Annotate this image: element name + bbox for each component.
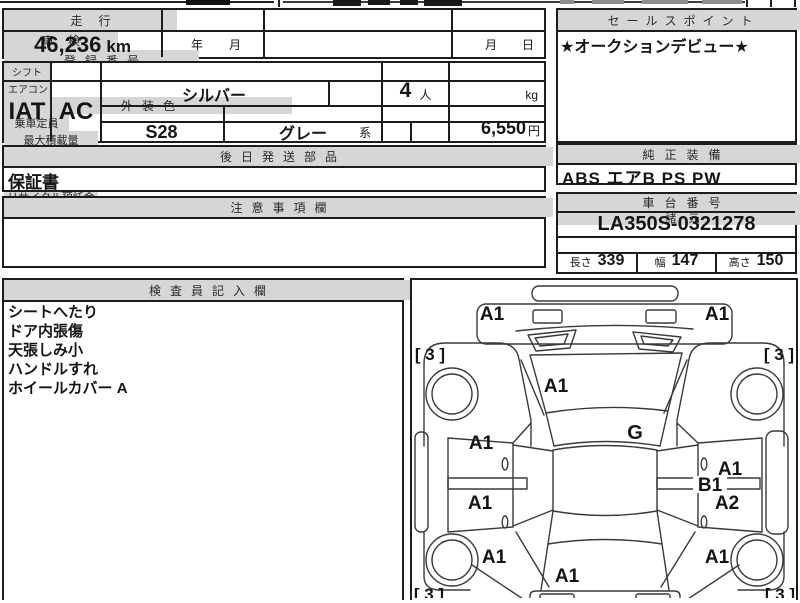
remnant-text	[368, 0, 390, 5]
remnant-text	[400, 0, 418, 5]
damage-label-hood: A1	[544, 376, 569, 397]
sales-point-header: セールスポイント	[558, 10, 800, 30]
damage-diagram: A1 A1 A1 G A1 A1 A1 B1 A2 A1 A1 A1 [ 3 ]…	[410, 278, 798, 600]
damage-label-front-door-left: A1	[469, 433, 494, 454]
inspection-month: 月	[229, 36, 241, 53]
chassis-header: 車台番号	[558, 194, 800, 211]
sales-point-section: セールスポイント ★オークションデビュー★	[556, 8, 797, 143]
capacity-unit: 人	[419, 86, 431, 103]
mileage-table: 走行 車検 登録番号 譲渡書類期限 46,236 km 年 月 月 日	[2, 8, 546, 59]
inspector-line: ホイールカバー A	[8, 379, 128, 398]
notes-section: 注意事項欄	[2, 196, 546, 268]
sales-point-value: ★オークションデビュー★	[560, 33, 749, 57]
length-value: 339	[598, 252, 625, 270]
transfer-day: 日	[522, 36, 534, 53]
mileage-unit: km	[106, 33, 131, 57]
equipment-header: 純正装備	[558, 145, 800, 163]
aircon-value: AC	[52, 82, 100, 141]
remnant-border	[278, 0, 280, 7]
damage-label-quarter-right: A1	[705, 547, 730, 568]
max-load-unit: kg	[450, 82, 544, 105]
tire-grade-rear-left: [ 3 ]	[414, 585, 444, 598]
chassis-value: LA350S-0321278	[558, 213, 795, 236]
remnant-border	[794, 0, 796, 7]
capacity-value: 4	[400, 79, 412, 103]
width-label: 幅	[655, 254, 666, 270]
remnant-text	[702, 0, 742, 4]
divider	[4, 166, 544, 168]
remnant-text	[186, 0, 230, 5]
color-no-value: S28	[100, 123, 223, 141]
damage-label-rear-panel: A1	[555, 566, 580, 587]
inspection-year: 年	[191, 36, 203, 53]
damage-label-front-right: A1	[705, 304, 730, 325]
shift-value: IAT	[4, 82, 50, 141]
inspector-line: シートへたり	[8, 303, 128, 322]
length-label: 長さ	[570, 254, 592, 270]
width-value: 147	[672, 252, 699, 270]
remnant-text	[592, 0, 624, 4]
registration-value	[265, 32, 451, 57]
spec-table: シフト エアコン 外装色 乗車定員 最大積載量 カラーNo. 内装色 輸入車 リ…	[2, 61, 546, 143]
later-parts-header: 後日発送部品	[4, 147, 553, 166]
recycle-deposit-unit: 円	[528, 122, 540, 139]
remnant-text	[424, 0, 462, 6]
remnant-text	[560, 0, 574, 4]
damage-label-front-left: A1	[480, 304, 505, 325]
chassis-section: 車台番号 LA350S-0321278 諸元 長さ 339 幅 147 高さ 1…	[556, 192, 797, 274]
exterior-color-value: シルバー	[100, 82, 328, 105]
divider	[4, 217, 544, 219]
later-parts-value: 保証書	[8, 168, 59, 193]
remnant-line	[0, 1, 274, 3]
inspector-line: ドア内張傷	[8, 322, 128, 341]
notes-header: 注意事項欄	[4, 198, 553, 217]
equipment-value: ABS エアB PS PW	[562, 164, 721, 189]
damage-label-windshield: G	[627, 422, 643, 444]
interior-color-suffix: 系	[349, 123, 381, 141]
height-label: 高さ	[729, 254, 751, 270]
divider	[328, 82, 330, 105]
remnant-border	[770, 0, 772, 7]
height-value: 150	[757, 252, 784, 270]
inspector-section: 検査員記入欄 シートへたり ドア内張傷 天張しみ小 ハンドルすれ ホイールカバー…	[2, 278, 404, 600]
remnant-border	[746, 0, 748, 7]
inspector-line: ハンドルすれ	[8, 360, 128, 379]
recycle-deposit-value: 6,550	[481, 118, 526, 139]
inspector-line: 天張しみ小	[8, 341, 128, 360]
car-top-view: A1 A1 A1 G A1 A1 A1 B1 A2 A1 A1 A1 [ 3 ]…	[412, 280, 796, 598]
divider	[4, 300, 402, 302]
divider	[410, 123, 412, 141]
transfer-month: 月	[485, 36, 497, 53]
damage-label-rear-door-left: A1	[468, 493, 493, 514]
later-parts-section: 後日発送部品 保証書	[2, 145, 546, 192]
tire-grade-front-left: [ 3 ]	[415, 345, 445, 364]
divider	[558, 236, 795, 238]
mileage-header: 走行	[4, 10, 177, 30]
damage-label-rear-door-right: A2	[715, 493, 739, 514]
inspector-header: 検査員記入欄	[4, 280, 411, 300]
mileage-value: 46,236	[34, 32, 101, 58]
damage-label-quarter-left: A1	[482, 547, 507, 568]
equipment-section: 純正装備 ABS エアB PS PW	[556, 143, 797, 185]
tire-grade-front-right: [ 3 ]	[764, 345, 794, 364]
remnant-text	[642, 0, 688, 4]
tire-grade-rear-right: [ 3 ]	[765, 585, 795, 598]
shift-header: シフト	[4, 63, 50, 80]
divider	[558, 30, 795, 32]
divider	[100, 105, 544, 107]
remnant-text	[333, 0, 361, 6]
